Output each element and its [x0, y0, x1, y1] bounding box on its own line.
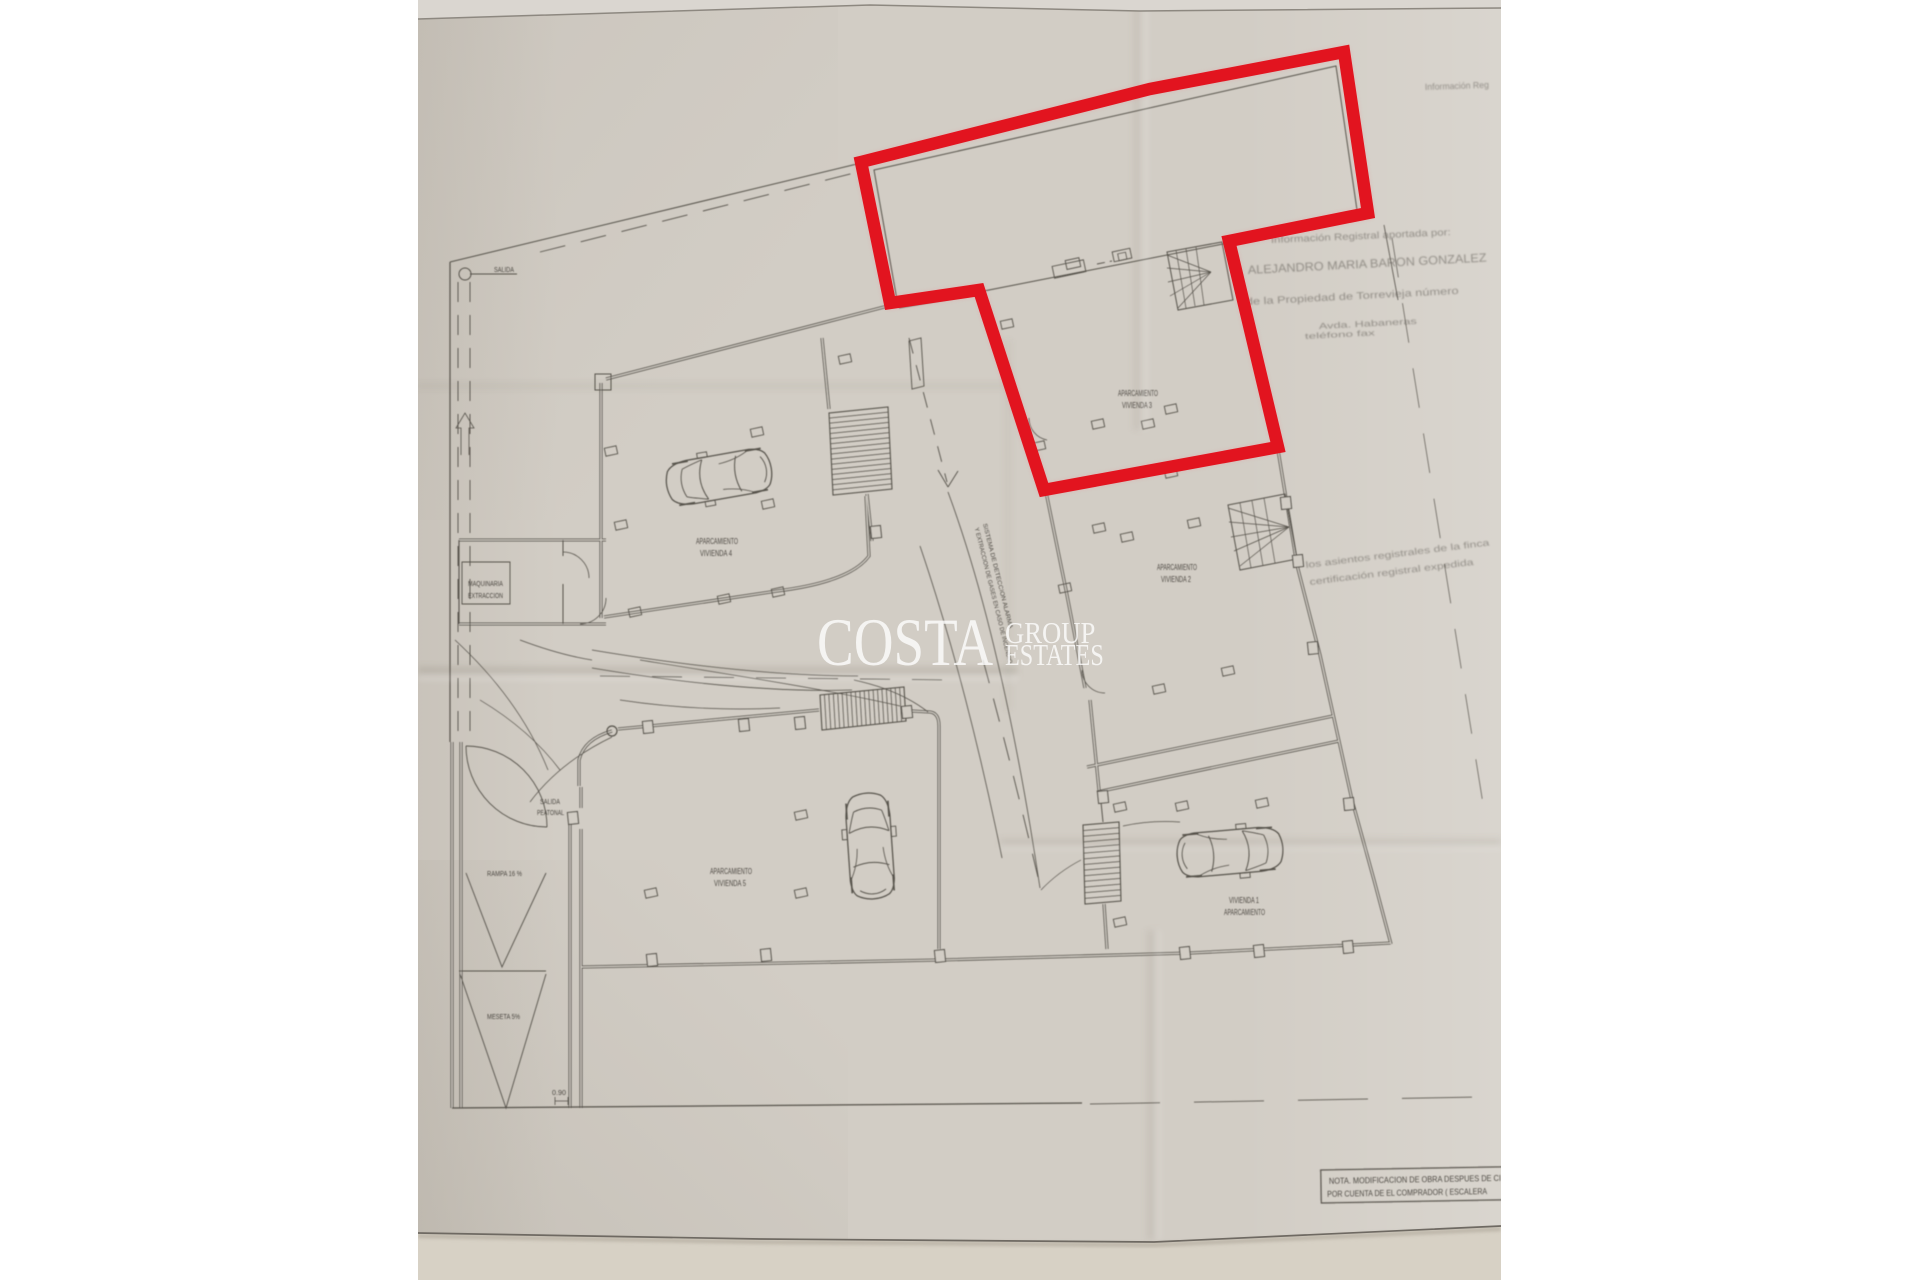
- svg-text:MESETA 5%: MESETA 5%: [487, 1012, 520, 1021]
- svg-text:EXTRACCION: EXTRACCION: [468, 591, 503, 600]
- svg-text:VIVIENDA 2: VIVIENDA 2: [1161, 575, 1191, 584]
- svg-text:RAMPA 16 %: RAMPA 16 %: [487, 869, 522, 878]
- svg-text:APARCAMIENTO: APARCAMIENTO: [1157, 563, 1197, 572]
- svg-text:VIVIENDA 5: VIVIENDA 5: [714, 879, 746, 888]
- svg-text:0.90: 0.90: [552, 1090, 566, 1097]
- svg-text:COSTA: COSTA: [817, 606, 993, 681]
- svg-text:PEATONAL: PEATONAL: [537, 810, 564, 817]
- svg-text:VIVIENDA 1: VIVIENDA 1: [1229, 896, 1259, 905]
- svg-text:MAQUINARIA: MAQUINARIA: [468, 579, 503, 588]
- svg-text:ESTATES: ESTATES: [1005, 638, 1104, 673]
- svg-text:SALIDA: SALIDA: [494, 267, 514, 274]
- svg-text:APARCAMIENTO: APARCAMIENTO: [696, 537, 738, 546]
- svg-text:APARCAMIENTO: APARCAMIENTO: [1224, 908, 1265, 917]
- svg-text:VIVIENDA 4: VIVIENDA 4: [700, 549, 732, 558]
- svg-text:SALIDA: SALIDA: [540, 799, 560, 806]
- svg-text:APARCAMIENTO: APARCAMIENTO: [710, 867, 752, 876]
